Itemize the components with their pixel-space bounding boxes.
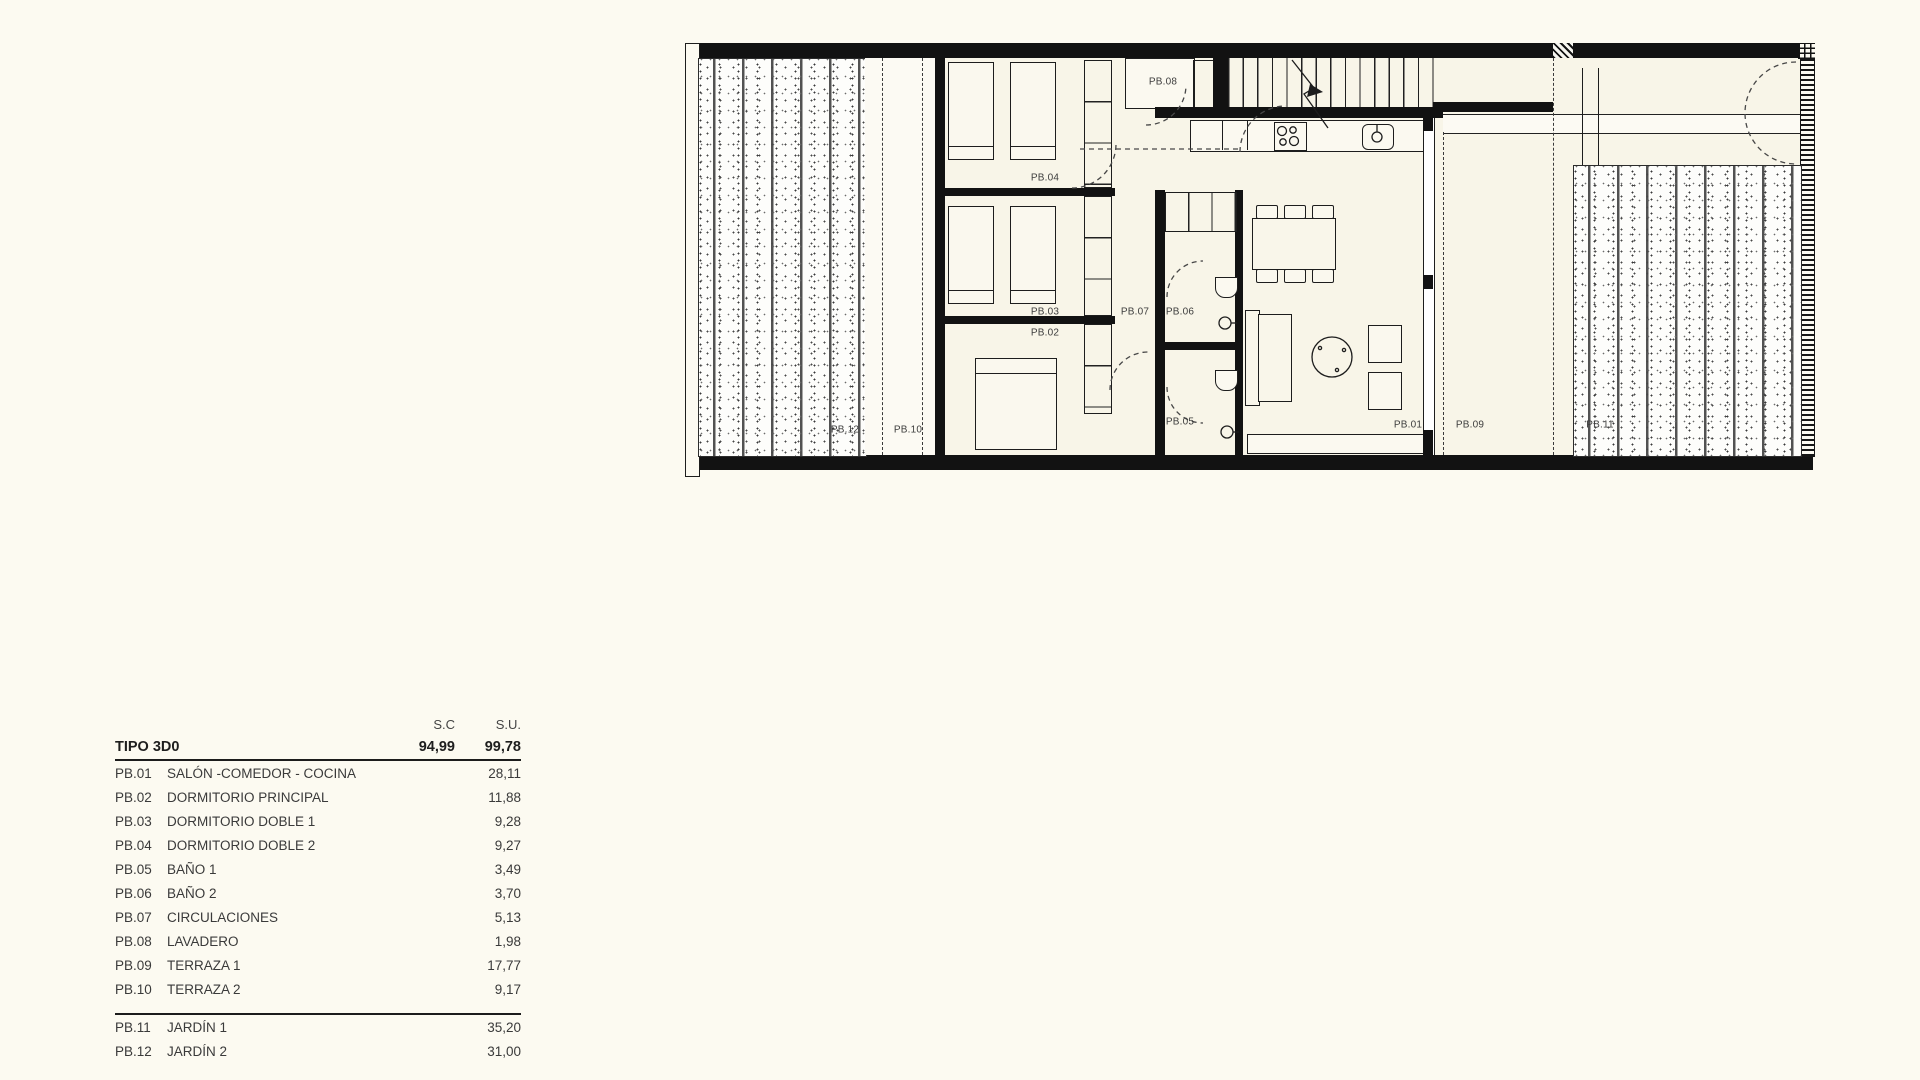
table-row: PB.02 DORMITORIO PRINCIPAL 11,88 xyxy=(115,785,521,809)
door-arc xyxy=(1146,85,1186,125)
door-arc xyxy=(1240,106,1286,152)
room-name: DORMITORIO DOBLE 2 xyxy=(167,838,370,853)
room-su: 35,20 xyxy=(455,1020,521,1035)
total-su: 99,78 xyxy=(455,739,521,755)
room-code: PB.12 xyxy=(115,1044,167,1059)
room-label-pb06: PB.06 xyxy=(1166,307,1194,318)
table-row: PB.06 BAÑO 2 3,70 xyxy=(115,881,521,905)
table-row: PB.03 DORMITORIO DOBLE 1 9,28 xyxy=(115,809,521,833)
room-code: PB.01 xyxy=(115,766,167,781)
table-row: PB.09 TERRAZA 1 17,77 xyxy=(115,953,521,977)
gate-arc xyxy=(1745,62,1796,164)
room-code: PB.02 xyxy=(115,790,167,805)
room-name: SALÓN -COMEDOR - COCINA xyxy=(167,766,370,781)
table-gap xyxy=(115,1001,521,1013)
room-su: 9,27 xyxy=(455,838,521,853)
coffee-table xyxy=(1312,337,1352,377)
sink-tap xyxy=(1372,132,1382,142)
sheet: PB.01 PB.02 PB.03 PB.04 PB.05 PB.06 PB.0… xyxy=(0,0,1920,1080)
room-su: 11,88 xyxy=(455,790,521,805)
col-header-sc: S.C xyxy=(370,717,455,732)
door-arc xyxy=(1110,352,1148,390)
stair-arrow xyxy=(1307,84,1323,97)
room-label-pb11: PB.11 xyxy=(1586,420,1614,431)
room-code: PB.10 xyxy=(115,982,167,997)
room-name: DORMITORIO DOBLE 1 xyxy=(167,814,370,829)
col-header-su: S.U. xyxy=(455,717,521,732)
table-row: PB.10 TERRAZA 2 9,17 xyxy=(115,977,521,1001)
table-row: PB.01 SALÓN -COMEDOR - COCINA 28,11 xyxy=(115,761,521,785)
coffee-table-dot xyxy=(1335,368,1338,371)
room-label-pb10: PB.10 xyxy=(894,425,922,436)
stove-burner xyxy=(1290,127,1296,133)
stove-burner xyxy=(1278,127,1287,136)
room-name: TERRAZA 1 xyxy=(167,958,370,973)
table-row: PB.11 JARDÍN 1 35,20 xyxy=(115,1015,521,1039)
room-name: JARDÍN 2 xyxy=(167,1044,370,1059)
table-row: PB.12 JARDÍN 2 31,00 xyxy=(115,1039,521,1063)
total-sc: 94,99 xyxy=(370,739,455,755)
room-name: LAVADERO xyxy=(167,934,370,949)
room-label-pb09: PB.09 xyxy=(1456,420,1484,431)
room-su: 9,17 xyxy=(455,982,521,997)
room-name: DORMITORIO PRINCIPAL xyxy=(167,790,370,805)
stove-burner xyxy=(1290,137,1299,146)
door-arc-layer xyxy=(680,40,1815,472)
room-code: PB.05 xyxy=(115,862,167,877)
room-label-pb08: PB.08 xyxy=(1149,77,1177,88)
room-code: PB.11 xyxy=(115,1020,167,1035)
room-label-pb03: PB.03 xyxy=(1031,307,1059,318)
room-code: PB.04 xyxy=(115,838,167,853)
table-header-row: S.C S.U. xyxy=(115,714,521,734)
floor-plan: PB.01 PB.02 PB.03 PB.04 PB.05 PB.06 PB.0… xyxy=(680,40,1815,472)
room-code: PB.09 xyxy=(115,958,167,973)
room-su: 3,70 xyxy=(455,886,521,901)
coffee-table-dot xyxy=(1342,348,1345,351)
type-name: TIPO 3D0 xyxy=(115,739,370,755)
room-su: 9,28 xyxy=(455,814,521,829)
stove-burner xyxy=(1280,139,1286,145)
room-label-pb02: PB.02 xyxy=(1031,328,1059,339)
room-name: BAÑO 1 xyxy=(167,862,370,877)
room-name: BAÑO 2 xyxy=(167,886,370,901)
bath-sink-icon xyxy=(1221,426,1233,438)
room-code: PB.08 xyxy=(115,934,167,949)
room-name: JARDÍN 1 xyxy=(167,1020,370,1035)
room-su: 31,00 xyxy=(455,1044,521,1059)
room-su: 1,98 xyxy=(455,934,521,949)
table-row: PB.07 CIRCULACIONES 5,13 xyxy=(115,905,521,929)
room-code: PB.03 xyxy=(115,814,167,829)
door-arc xyxy=(1167,261,1203,297)
room-su: 5,13 xyxy=(455,910,521,925)
table-row: PB.05 BAÑO 1 3,49 xyxy=(115,857,521,881)
room-name: TERRAZA 2 xyxy=(167,982,370,997)
room-label-pb04: PB.04 xyxy=(1031,173,1059,184)
table-row: PB.04 DORMITORIO DOBLE 2 9,27 xyxy=(115,833,521,857)
room-su: 3,49 xyxy=(455,862,521,877)
room-code: PB.06 xyxy=(115,886,167,901)
bath-sink-icon xyxy=(1219,317,1231,329)
table-row: PB.08 LAVADERO 1,98 xyxy=(115,929,521,953)
room-label-pb01: PB.01 xyxy=(1394,420,1422,431)
room-code: PB.07 xyxy=(115,910,167,925)
table-total-row: TIPO 3D0 94,99 99,78 xyxy=(115,734,521,759)
coffee-table-dot xyxy=(1318,346,1321,349)
room-label-pb07: PB.07 xyxy=(1121,307,1149,318)
area-table: S.C S.U. TIPO 3D0 94,99 99,78 PB.01 SALÓ… xyxy=(115,714,521,1063)
room-su: 28,11 xyxy=(455,766,521,781)
room-su: 17,77 xyxy=(455,958,521,973)
room-label-pb12: PB.12 xyxy=(831,425,859,436)
room-label-pb05: PB.05 xyxy=(1166,417,1194,428)
door-arc xyxy=(1072,144,1116,188)
room-name: CIRCULACIONES xyxy=(167,910,370,925)
